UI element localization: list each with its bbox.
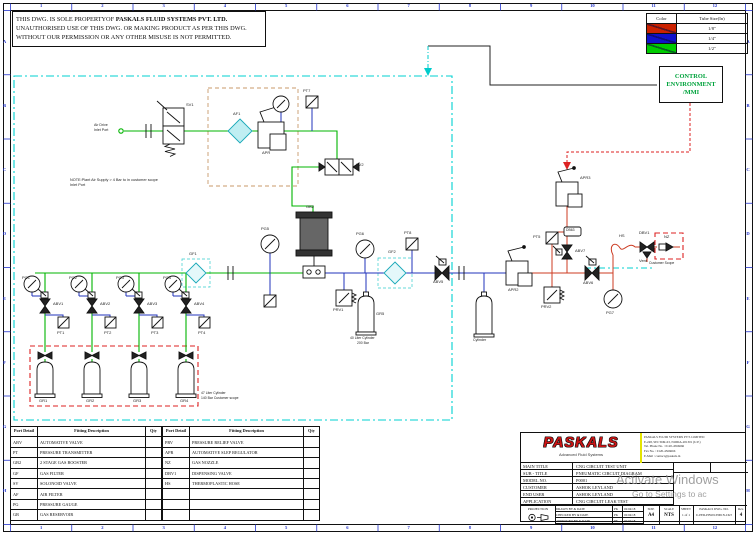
scale-value: NTS <box>659 513 679 518</box>
fitting-port-code: PRV <box>163 437 190 447</box>
signature-initial: PK <box>613 518 623 523</box>
diagram-label: PT2 <box>104 331 111 335</box>
fit-left-desc-header: Fitting Description <box>38 427 146 437</box>
fitting-qty <box>146 458 162 468</box>
diagram-label: PRV2 <box>541 305 551 309</box>
control-line2: ENVIRONMENT <box>666 81 715 89</box>
signature-label: APPROVED BY & DATE <box>555 518 613 523</box>
fitting-port-code: GR <box>11 510 38 520</box>
address-line: E-Mail : contact@paskals.in <box>644 454 744 459</box>
fitting-description: THERMOPLASTIC HOSE <box>190 478 304 488</box>
diagram-label: PG2 <box>69 276 77 280</box>
diagram-label: GR3 <box>133 399 141 403</box>
title-row-label: END USER <box>521 491 573 497</box>
fitting-qty <box>304 478 320 488</box>
title-row-value: CNG CIRCUIT TEST UNIT <box>573 463 673 469</box>
disclaimer-line3: WITHOUT OUR PERMISSION OR ANY OTHER MISU… <box>16 34 231 41</box>
fitting-port-code: GB2 <box>11 458 38 468</box>
rev-cell: Rev. 4 <box>735 506 747 524</box>
disclaimer-box: THIS DWG. IS SOLE PROPERTYOF PASKALS FLU… <box>12 11 266 47</box>
fitting-description: AUTOMATIVE SLEP REGULATOR <box>190 447 304 457</box>
rev-value: 4 <box>735 513 747 518</box>
dwg-no-cell: PASKALS DWG. NO. U-PED-P0W01/P001N-CKT <box>693 506 735 524</box>
fitting-port-code <box>163 489 190 499</box>
diagram-label: PG4 <box>163 276 171 280</box>
fitting-qty <box>304 437 320 447</box>
diagram-label: PG7 <box>606 311 614 315</box>
watermark-line1: Activate Windows <box>616 472 719 487</box>
fitting-row: AFAIR FILTER <box>11 489 162 499</box>
diagram-label: PT3 <box>151 331 158 335</box>
fitting-port-code: PT <box>11 447 38 457</box>
diagram-label: APR2 <box>508 288 518 292</box>
fit-right-qty-header: Qty <box>304 427 320 437</box>
signature-label: CHECKED BY & DATE <box>555 512 613 517</box>
fitting-port-code: PG <box>11 499 38 509</box>
fitting-description: AUTOMATIVE VALVE <box>38 437 146 447</box>
diagram-label: GR1 <box>39 399 47 403</box>
diagram-label: PG3 <box>116 276 124 280</box>
diagram-label: PG5 <box>261 227 269 231</box>
legend-size-red: 1/8" <box>677 24 748 34</box>
activate-windows-watermark: Activate Windows Go to Settings to ac <box>616 472 719 499</box>
signature-label: DRAWN BY & DATE <box>555 506 613 511</box>
fitting-qty <box>146 437 162 447</box>
dwg-no-label: PASKALS DWG. NO. <box>693 507 735 511</box>
legend-swatch-blue <box>647 34 677 44</box>
fitting-port-code: SV <box>11 478 38 488</box>
company-address: PASKALS FLUID SYSTEMS PVT. LIMITED E-248… <box>644 435 744 458</box>
signature-initial: PK <box>613 512 623 517</box>
diagram-label: PT1 <box>57 331 64 335</box>
diagram-label: AF1 <box>233 112 240 116</box>
diagram-label: DB63 <box>566 229 574 232</box>
disclaimer-line2: UNAUTHORISED USE OF THIS DWG. OR MAKING … <box>16 25 247 32</box>
fitting-qty <box>146 468 162 478</box>
diagram-label: PT5 <box>533 235 540 239</box>
diagram-label: ABV5 <box>433 280 443 284</box>
fitting-port-code: AF <box>11 489 38 499</box>
diagram-label: 140 Bar Customer scope <box>201 397 239 400</box>
fitting-port-code <box>163 499 190 509</box>
fitting-description <box>190 499 304 509</box>
fitting-qty <box>146 478 162 488</box>
diagram-label: DBV1 <box>639 231 649 235</box>
signature-date: 02/04/18 <box>623 506 643 511</box>
fitting-description: AIR FILTER <box>38 489 146 499</box>
fitting-port-code: GF <box>11 468 38 478</box>
rev-label: Rev. <box>735 507 747 511</box>
control-environment-box: CONTROL ENVIRONMENT /MMI <box>659 66 723 103</box>
fitting-row: HSTHERMOPLASTIC HOSE <box>163 478 320 488</box>
title-signature-band: PROJECTION DRAWN BY & DATEPK02/04/18CHEC… <box>521 505 747 523</box>
fitting-port-code <box>163 510 190 520</box>
diagram-label: 200 Bar <box>357 342 369 345</box>
fitting-row <box>163 510 320 520</box>
diagram-label: GR2 <box>86 399 94 403</box>
diagram-label: Inlet Port <box>70 184 85 188</box>
fit-left-port-header: Port Detail <box>11 427 38 437</box>
title-block-header: PASKALS Advanced Fluid Systems PASKALS F… <box>521 433 747 463</box>
diagram-label: ABV1 <box>53 302 63 306</box>
logo-subtitle: Advanced Fluid Systems <box>525 452 637 457</box>
legend-size-blue: 1/4" <box>677 34 748 44</box>
fitting-description <box>190 510 304 520</box>
fitting-description: GAS FILTER <box>38 468 146 478</box>
fitting-qty <box>146 499 162 509</box>
diagram-label: ABV3 <box>147 302 157 306</box>
diagram-label: PRV1 <box>333 308 343 312</box>
diagram-label: APR <box>262 151 270 155</box>
fitting-port-code: NZ <box>163 458 190 468</box>
fitting-qty <box>304 458 320 468</box>
diagram-label: Customer Scope <box>649 262 674 265</box>
fitting-row: GB22 STAGE GAS BOOSTER <box>11 458 162 468</box>
fitting-description: DISPENSING VALVE <box>190 468 304 478</box>
fitting-description: PRESSURE GAUGE <box>38 499 146 509</box>
fitting-description: PRESSURE RELIEF VALVE <box>190 437 304 447</box>
diagram-label: GR5 <box>376 312 384 316</box>
diagram-label: ABV4 <box>194 302 204 306</box>
diagram-label: PT4 <box>198 331 205 335</box>
size-value: A4 <box>643 513 659 518</box>
control-line1: CONTROL <box>675 73 707 81</box>
title-row-label: SUB - TITLE <box>521 470 573 476</box>
fitting-row: PRVPRESSURE RELIEF VALVE <box>163 437 320 447</box>
diagram-label: 47 Liter Cylinder <box>201 392 226 395</box>
logo-text: PASKALS <box>525 435 637 451</box>
fitting-description: SOLONOID VALVE <box>38 478 146 488</box>
fitting-description: GAS NOZZLE <box>190 458 304 468</box>
diagram-label: Cylinder <box>473 339 486 343</box>
watermark-line2: Go to Settings to ac <box>632 489 719 499</box>
diagram-label: PG1 <box>22 276 30 280</box>
signature-row: APPROVED BY & DATEPK02/04/18 <box>555 518 643 524</box>
fitting-qty <box>304 510 320 520</box>
diagram-label: GR4 <box>180 399 188 403</box>
diagram-label: APR3 <box>580 176 590 180</box>
disclaimer-line1: THIS DWG. IS SOLE PROPERTYOF PASKALS FLU… <box>16 16 227 23</box>
fitting-description <box>190 489 304 499</box>
diagram-label: ABV6 <box>583 281 593 285</box>
fitting-row: ABVAUTOMATIVE VALVE <box>11 437 162 447</box>
fitting-qty <box>304 447 320 457</box>
fitting-row: GRGAS RESERVOIR <box>11 510 162 520</box>
diagram-label: PT7 <box>303 89 310 93</box>
size-cell: SIZE A4 <box>643 506 659 524</box>
fitting-table-left: Port Detail Fitting Description Qty ABVA… <box>10 426 162 521</box>
signature-date: 02/04/18 <box>623 518 643 523</box>
diagram-label: PT8 <box>404 231 411 235</box>
title-row-label: CUSTOMER <box>521 484 573 490</box>
sheet-label: SHEET <box>679 507 693 511</box>
fitting-qty <box>146 510 162 520</box>
diagram-label: ABV2 <box>100 302 110 306</box>
diagram-label: Vent <box>639 259 647 263</box>
fitting-qty <box>304 489 320 499</box>
title-row-label: APPLICATION <box>521 498 573 504</box>
legend-size-green: 1/2" <box>677 44 748 54</box>
diagram-label: GB2 <box>306 205 314 209</box>
diagram-label: GF1 <box>189 252 197 256</box>
fitting-row: PGPRESSURE GAUGE <box>11 499 162 509</box>
projection-label: PROJECTION <box>521 507 555 511</box>
legend-size-header: Tube Size(In) <box>677 14 748 24</box>
diagram-label: SV2 <box>356 163 364 167</box>
scale-label: SCALE <box>659 507 679 511</box>
projection-symbol-icon <box>527 512 551 523</box>
diagram-label: SV1 <box>186 103 194 107</box>
control-line3: /MMI <box>683 89 699 97</box>
fitting-description: GAS RESERVOIR <box>38 510 146 520</box>
fitting-qty <box>146 447 162 457</box>
fitting-qty <box>146 489 162 499</box>
fitting-row: SVSOLONOID VALVE <box>11 478 162 488</box>
sheet-cell: SHEET 1 of 1 <box>679 506 693 524</box>
fitting-table-right: Port Detail Fitting Description Qty PRVP… <box>162 426 320 521</box>
fitting-port-code: DBV1 <box>163 468 190 478</box>
fit-right-desc-header: Fitting Description <box>190 427 304 437</box>
fitting-row <box>163 489 320 499</box>
title-row-label: MAIN TITLE <box>521 463 573 469</box>
diagram-label: HS <box>619 234 625 238</box>
sheet-value: 1 of 1 <box>679 513 693 517</box>
diagram-label: 40 Liter Cylinder <box>350 337 375 340</box>
title-info-row: APPLICATIONCNG CIRCUIT LEAK TEST <box>521 498 673 505</box>
fitting-port-code: HS <box>163 478 190 488</box>
fitting-qty <box>304 499 320 509</box>
paskals-logo: PASKALS Advanced Fluid Systems <box>525 435 637 461</box>
fit-left-qty-header: Qty <box>146 427 162 437</box>
signature-initial: PK <box>613 506 623 511</box>
title-row-label: MODEL NO. <box>521 477 573 483</box>
signature-date: 02/04/18 <box>623 512 643 517</box>
diagram-label: PG6 <box>356 232 364 236</box>
fitting-row <box>163 499 320 509</box>
fit-right-port-header: Port Detail <box>163 427 190 437</box>
fitting-description: PRESSURE TRANSMITTER <box>38 447 146 457</box>
diagram-label: GF2 <box>388 250 396 254</box>
logo-divider <box>640 433 642 463</box>
tube-size-legend: Color Tube Size(In) 1/8" 1/4" 1/2" <box>646 13 748 54</box>
scale-cell: SCALE NTS <box>659 506 679 524</box>
fitting-row: PTPRESSURE TRANSMITTER <box>11 447 162 457</box>
fitting-port-code: APR <box>163 447 190 457</box>
legend-swatch-red <box>647 24 677 34</box>
legend-color-header: Color <box>647 14 677 24</box>
diagram-label: ABV7 <box>575 249 585 253</box>
fitting-row: GFGAS FILTER <box>11 468 162 478</box>
dwg-no-value: U-PED-P0W01/P001N-CKT <box>693 513 735 517</box>
fitting-port-code: ABV <box>11 437 38 447</box>
title-info-row: MAIN TITLECNG CIRCUIT TEST UNIT <box>521 463 673 470</box>
diagram-label: NZ <box>664 235 669 239</box>
diagram-label: Inlet Port <box>94 129 108 133</box>
fitting-row: DBV1DISPENSING VALVE <box>163 468 320 478</box>
size-label: SIZE <box>643 507 659 511</box>
legend-swatch-green <box>647 44 677 54</box>
fitting-row: NZGAS NOZZLE <box>163 458 320 468</box>
fitting-qty <box>304 468 320 478</box>
drawing-sheet: 112233445566778899101011111212AABBCCDDEE… <box>0 0 756 535</box>
fitting-description: 2 STAGE GAS BOOSTER <box>38 458 146 468</box>
fitting-row: APRAUTOMATIVE SLEP REGULATOR <box>163 447 320 457</box>
